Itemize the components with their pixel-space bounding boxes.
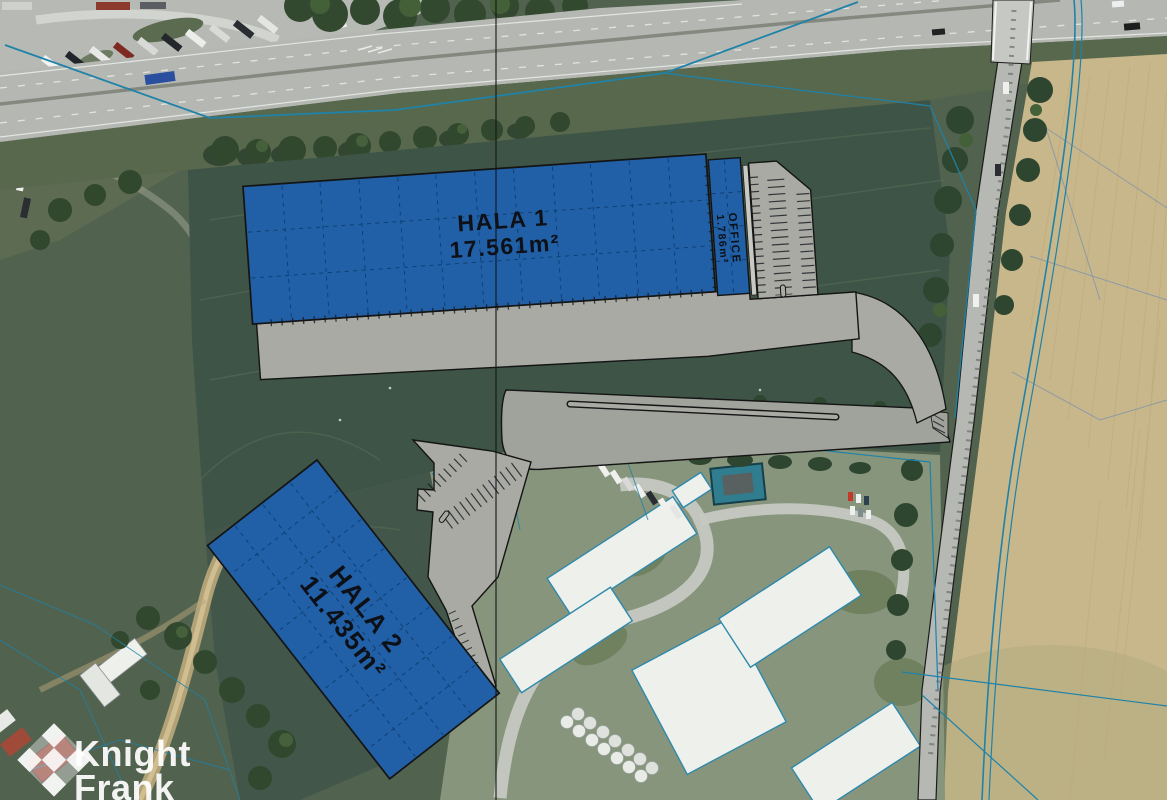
parking-end-island	[780, 285, 786, 297]
tennis-court-center	[722, 472, 754, 495]
map-svg: HALA 1 17.561m² OFFICE 1.786m² HALA 2 11…	[0, 0, 1167, 800]
dark-building	[140, 2, 166, 9]
logo-wordmark-line2: Frank	[74, 767, 175, 800]
light-building	[2, 2, 32, 10]
car	[1112, 0, 1124, 7]
red-roof-building	[96, 2, 130, 10]
car	[932, 28, 945, 35]
van	[1124, 22, 1141, 30]
site-plan-map: HALA 1 17.561m² OFFICE 1.786m² HALA 2 11…	[0, 0, 1167, 800]
